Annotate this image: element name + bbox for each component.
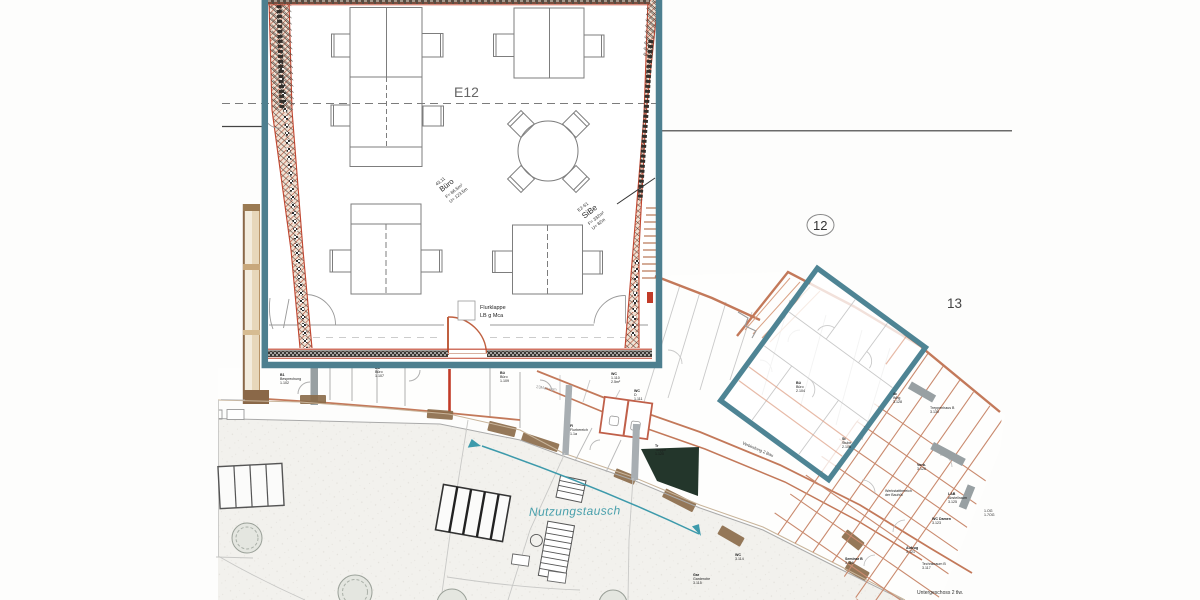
svg-text:3.121: 3.121 (906, 550, 915, 554)
svg-text:3.115: 3.115 (693, 581, 702, 585)
svg-text:1.102: 1.102 (280, 381, 289, 385)
svg-text:Untergeschoss 2 tlw.: Untergeschoss 2 tlw. (917, 590, 963, 596)
svg-text:Flurklappe: Flurklappe (480, 305, 506, 311)
svg-text:3.130: 3.130 (930, 410, 939, 414)
svg-text:E12: E12 (454, 84, 479, 100)
svg-text:3.126: 3.126 (917, 467, 926, 471)
svg-text:1.1a: 1.1a (570, 432, 577, 436)
svg-text:3.117: 3.117 (922, 566, 931, 570)
svg-text:1.7OG: 1.7OG (984, 513, 995, 517)
svg-text:1.120: 1.120 (655, 452, 664, 456)
svg-text:3.125: 3.125 (948, 500, 957, 504)
svg-text:2.104: 2.104 (796, 389, 805, 393)
svg-text:3.119: 3.119 (845, 561, 854, 565)
svg-text:LB g Mca: LB g Mca (480, 313, 504, 319)
svg-text:1.111: 1.111 (634, 397, 642, 401)
svg-text:3.114: 3.114 (735, 557, 744, 561)
svg-text:3.123: 3.123 (932, 521, 941, 525)
svg-text:2.5m²: 2.5m² (611, 380, 621, 384)
svg-text:1.109: 1.109 (500, 379, 509, 383)
svg-text:der Bauhüt: der Bauhüt (885, 493, 903, 497)
svg-text:2.106: 2.106 (842, 445, 851, 449)
svg-text:Nutzungstausch: Nutzungstausch (529, 503, 621, 519)
svg-text:13: 13 (947, 296, 962, 311)
svg-text:1.107: 1.107 (375, 374, 384, 378)
svg-text:12: 12 (813, 218, 827, 233)
svg-text:3.128: 3.128 (893, 400, 902, 404)
